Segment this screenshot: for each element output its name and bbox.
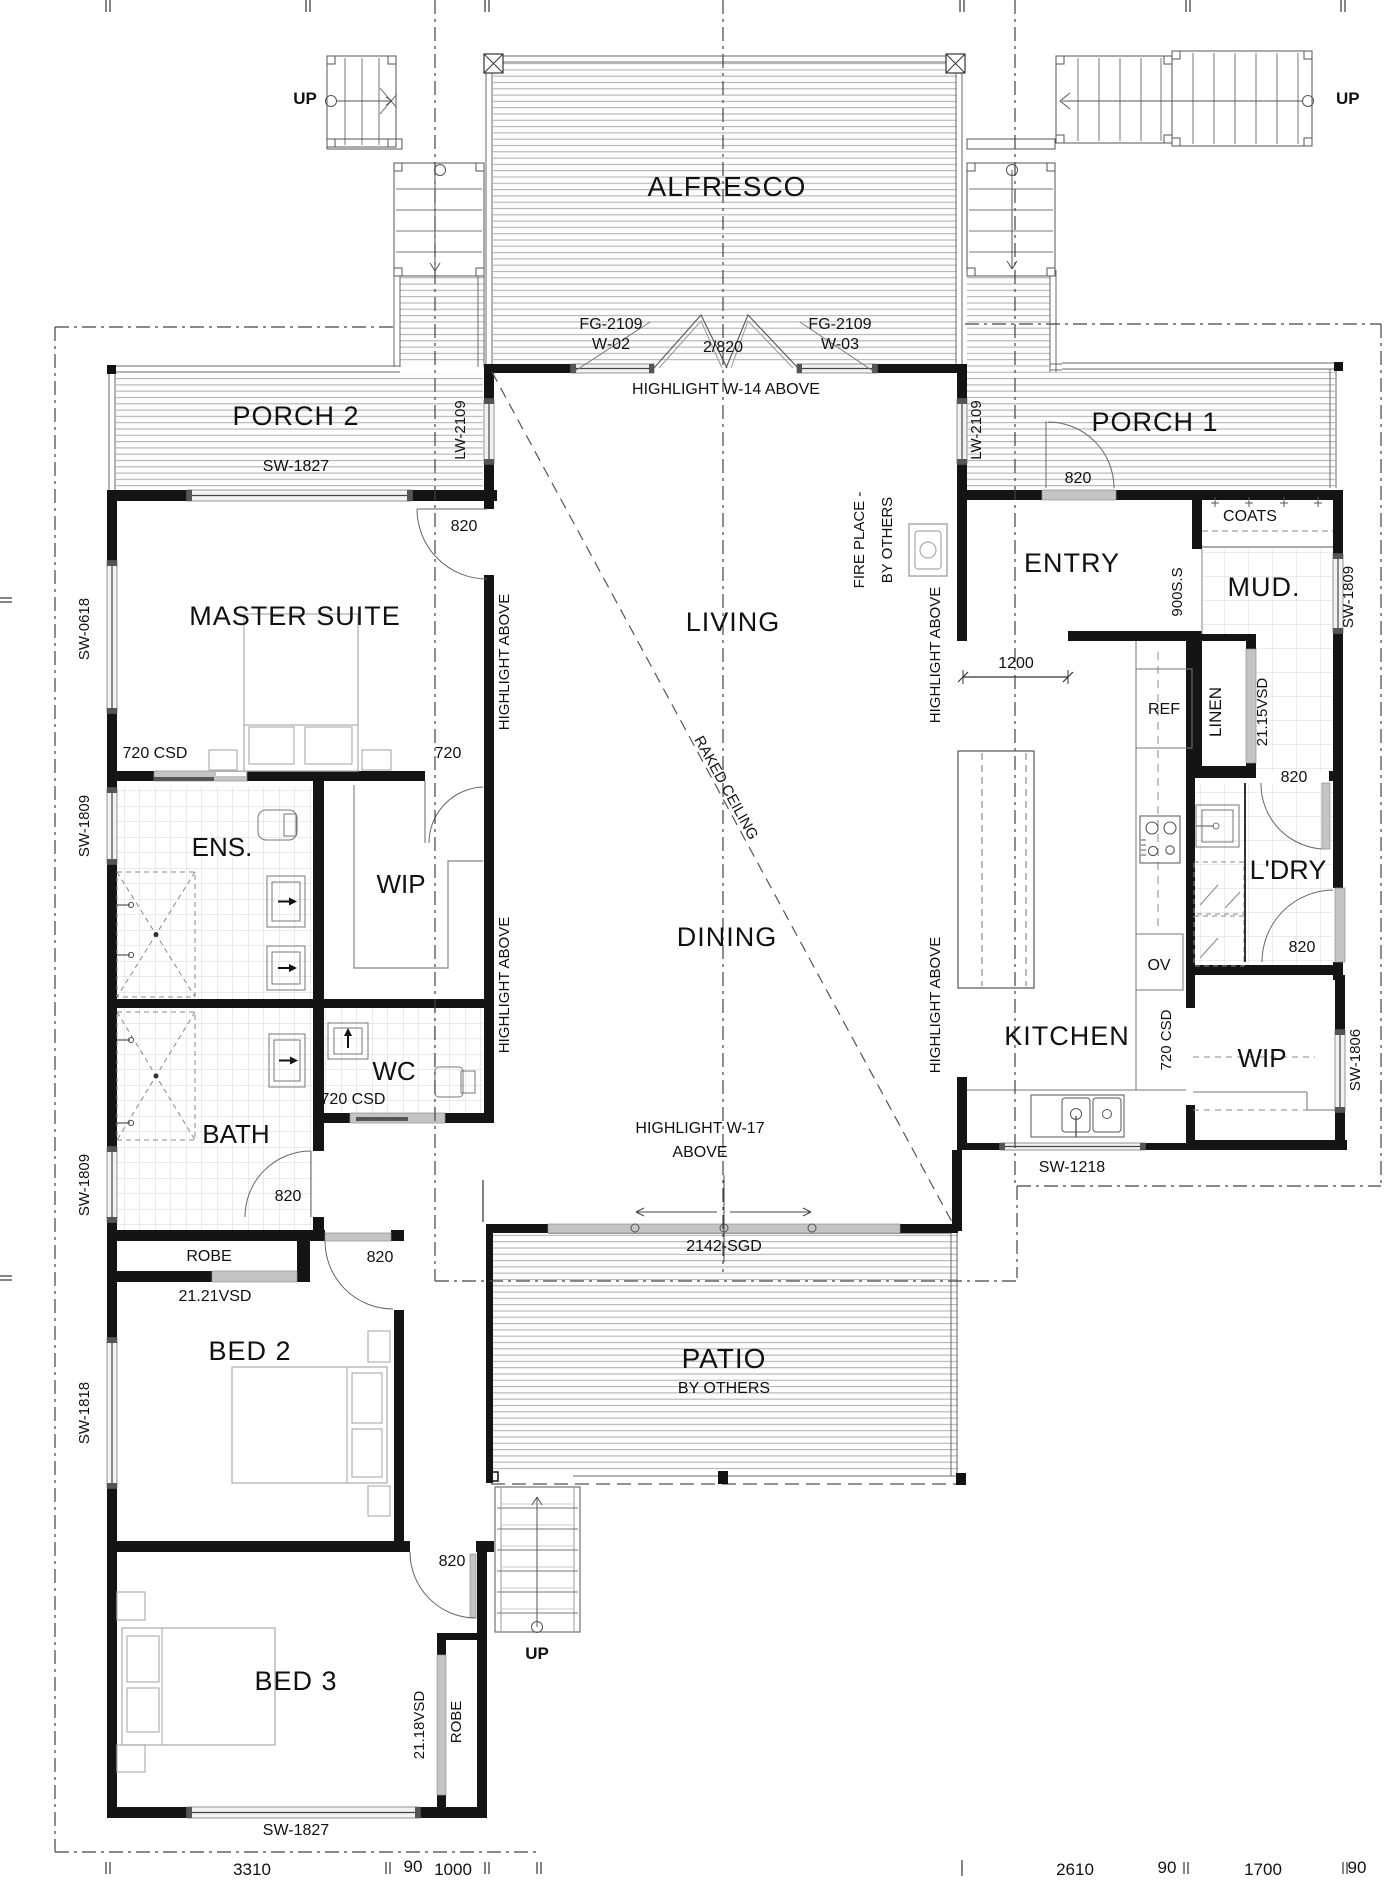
svg-text:L'DRY: L'DRY bbox=[1250, 855, 1327, 885]
svg-text:REF: REF bbox=[1148, 701, 1180, 718]
svg-text:ROBE: ROBE bbox=[448, 1701, 465, 1744]
svg-text:HIGHLIGHT W-17: HIGHLIGHT W-17 bbox=[635, 1120, 764, 1137]
svg-text:90: 90 bbox=[404, 1857, 423, 1876]
svg-text:MUD.: MUD. bbox=[1228, 572, 1301, 602]
svg-text:820: 820 bbox=[451, 518, 478, 535]
svg-text:COATS: COATS bbox=[1223, 508, 1277, 525]
svg-text:W-03: W-03 bbox=[821, 336, 859, 353]
svg-text:21.18VSD: 21.18VSD bbox=[411, 1691, 428, 1760]
svg-text:820: 820 bbox=[1281, 769, 1308, 786]
svg-text:BY OTHERS: BY OTHERS bbox=[879, 497, 896, 583]
svg-text:SW-1809: SW-1809 bbox=[76, 795, 93, 857]
svg-text:21.15VSD: 21.15VSD bbox=[1254, 678, 1271, 747]
svg-text:1700: 1700 bbox=[1244, 1860, 1282, 1879]
svg-text:UP: UP bbox=[1336, 89, 1360, 108]
svg-text:BATH: BATH bbox=[202, 1119, 269, 1149]
svg-text:BED 2: BED 2 bbox=[208, 1336, 291, 1366]
svg-text:PATIO: PATIO bbox=[682, 1343, 767, 1374]
svg-text:SW-1806: SW-1806 bbox=[1347, 1029, 1364, 1091]
svg-text:KITCHEN: KITCHEN bbox=[1004, 1021, 1130, 1051]
svg-text:SW-0618: SW-0618 bbox=[76, 598, 93, 660]
svg-text:820: 820 bbox=[275, 1188, 302, 1205]
svg-text:21.21VSD: 21.21VSD bbox=[179, 1288, 252, 1305]
svg-text:WC: WC bbox=[372, 1056, 415, 1086]
svg-text:HIGHLIGHT ABOVE: HIGHLIGHT ABOVE bbox=[927, 587, 944, 723]
svg-text:ROBE: ROBE bbox=[186, 1248, 231, 1265]
svg-text:SW-1218: SW-1218 bbox=[1039, 1159, 1106, 1176]
svg-text:90: 90 bbox=[1348, 1858, 1367, 1877]
svg-text:FG-2109: FG-2109 bbox=[579, 316, 642, 333]
svg-text:BED 3: BED 3 bbox=[254, 1666, 337, 1696]
svg-text:720: 720 bbox=[435, 745, 462, 762]
svg-text:900S.S: 900S.S bbox=[1169, 567, 1186, 616]
svg-text:ALFRESCO: ALFRESCO bbox=[648, 171, 807, 202]
svg-text:2142-SGD: 2142-SGD bbox=[686, 1238, 762, 1255]
svg-text:WIP: WIP bbox=[1237, 1043, 1286, 1073]
svg-text:820: 820 bbox=[1289, 939, 1316, 956]
svg-text:720 CSD: 720 CSD bbox=[1158, 1009, 1175, 1070]
svg-text:WIP: WIP bbox=[376, 869, 425, 899]
svg-text:820: 820 bbox=[439, 1553, 466, 1570]
svg-text:UP: UP bbox=[525, 1644, 549, 1663]
svg-text:UP: UP bbox=[293, 89, 317, 108]
svg-text:820: 820 bbox=[367, 1249, 394, 1266]
svg-text:LIVING: LIVING bbox=[686, 607, 781, 637]
svg-text:FG-2109: FG-2109 bbox=[808, 316, 871, 333]
svg-text:HIGHLIGHT ABOVE: HIGHLIGHT ABOVE bbox=[496, 917, 513, 1053]
svg-text:2/820: 2/820 bbox=[703, 339, 743, 356]
svg-text:W-02: W-02 bbox=[592, 336, 630, 353]
svg-text:ENTRY: ENTRY bbox=[1024, 548, 1120, 578]
svg-text:HIGHLIGHT ABOVE: HIGHLIGHT ABOVE bbox=[927, 937, 944, 1073]
svg-text:HIGHLIGHT W-14 ABOVE: HIGHLIGHT W-14 ABOVE bbox=[632, 381, 820, 398]
svg-text:820: 820 bbox=[1065, 470, 1092, 487]
svg-text:SW-1809: SW-1809 bbox=[1340, 566, 1357, 628]
svg-text:LW-2109: LW-2109 bbox=[968, 400, 985, 459]
svg-text:1200: 1200 bbox=[998, 655, 1034, 672]
svg-text:720 CSD: 720 CSD bbox=[321, 1091, 386, 1108]
svg-text:HIGHLIGHT ABOVE: HIGHLIGHT ABOVE bbox=[496, 594, 513, 730]
svg-text:SW-1809: SW-1809 bbox=[76, 1154, 93, 1216]
svg-text:BY OTHERS: BY OTHERS bbox=[678, 1380, 770, 1397]
svg-text:PORCH 1: PORCH 1 bbox=[1091, 407, 1218, 437]
svg-text:LW-2109: LW-2109 bbox=[452, 400, 469, 459]
svg-text:SW-1818: SW-1818 bbox=[76, 1382, 93, 1444]
svg-text:FIRE PLACE -: FIRE PLACE - bbox=[851, 492, 868, 589]
svg-text:LINEN: LINEN bbox=[1206, 687, 1225, 737]
svg-text:OV: OV bbox=[1147, 957, 1170, 974]
svg-text:720 CSD: 720 CSD bbox=[123, 745, 188, 762]
svg-text:SW-1827: SW-1827 bbox=[263, 1822, 330, 1839]
svg-text:1000: 1000 bbox=[434, 1860, 472, 1879]
svg-text:PORCH 2: PORCH 2 bbox=[232, 401, 359, 431]
svg-text:2610: 2610 bbox=[1056, 1860, 1094, 1879]
svg-text:SW-1827: SW-1827 bbox=[263, 458, 330, 475]
svg-text:90: 90 bbox=[1158, 1858, 1177, 1877]
svg-text:MASTER SUITE: MASTER SUITE bbox=[189, 601, 401, 631]
svg-text:3310: 3310 bbox=[233, 1860, 271, 1879]
svg-text:ENS.: ENS. bbox=[192, 832, 253, 862]
svg-text:ABOVE: ABOVE bbox=[672, 1144, 727, 1161]
svg-text:DINING: DINING bbox=[677, 922, 778, 952]
